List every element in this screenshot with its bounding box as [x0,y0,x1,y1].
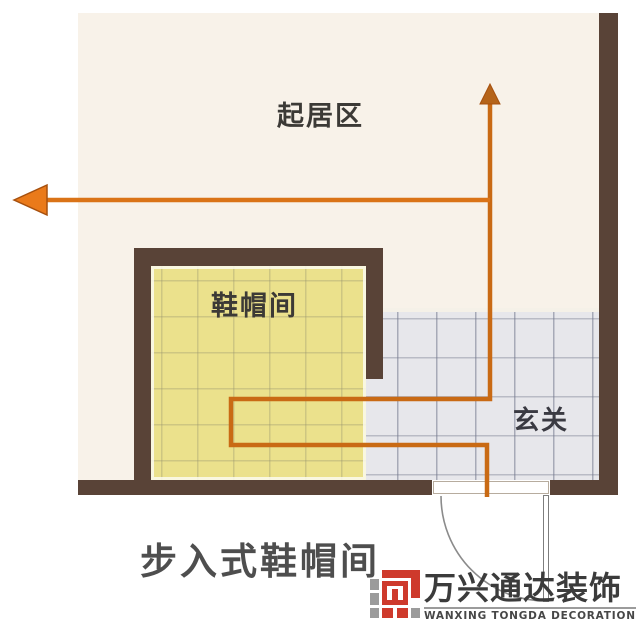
door-opening [433,481,549,494]
wall-bottom-right [550,480,618,495]
floor-plan-canvas: 起居区 鞋帽间 玄关 步入式鞋帽间 万兴通达装饰 WANXING TONGDA … [0,0,640,626]
wall-bottom-left [78,480,432,495]
label-entry: 玄关 [513,400,569,437]
watermark-name-en: WANXING TONGDA DECORATION [424,607,636,622]
wall-cloakroom-right [366,248,383,379]
watermark: 万兴通达装饰 WANXING TONGDA DECORATION [370,570,636,622]
wall-right [599,13,618,495]
label-cloakroom: 鞋帽间 [211,284,298,323]
wall-cloakroom-left [134,248,151,480]
wall-cloakroom-top [134,248,383,266]
caption-title: 步入式鞋帽间 [140,531,380,585]
watermark-name-cn: 万兴通达装饰 [424,570,636,606]
arrow-left-icon [14,185,47,215]
entry-floor-tiles [366,308,599,480]
watermark-logo-icon [370,570,420,620]
label-living-area: 起居区 [277,94,364,133]
